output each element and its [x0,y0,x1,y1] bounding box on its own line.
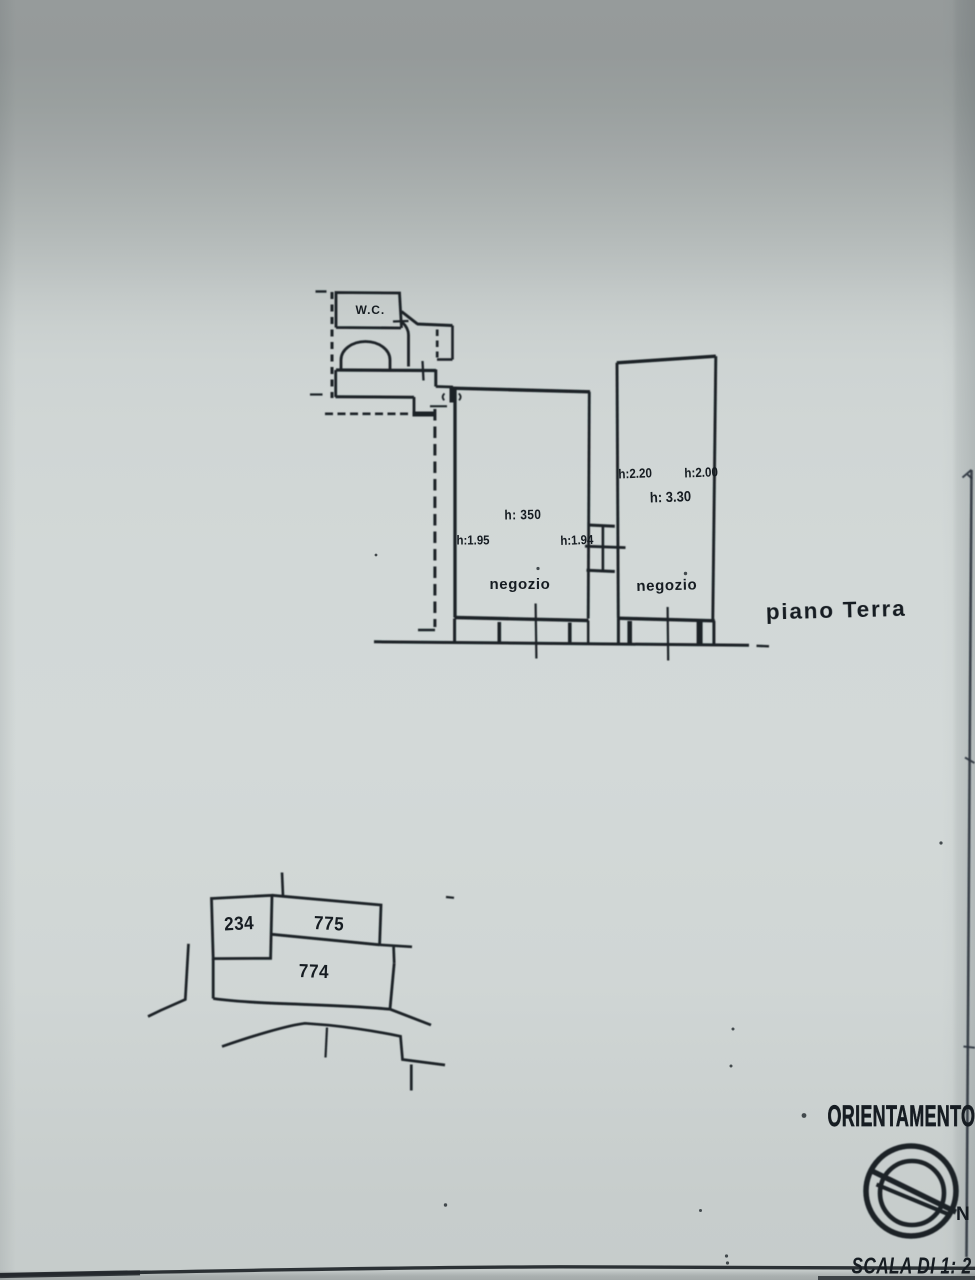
svg-text:h: 350: h: 350 [504,506,541,523]
svg-text:piano Terra: piano Terra [765,596,906,625]
svg-text:774: 774 [298,960,329,982]
svg-text:h:1.95: h:1.95 [457,533,490,548]
svg-text:h:2.20: h:2.20 [618,466,652,482]
svg-text:h:1.94: h:1.94 [560,532,594,548]
svg-text:W.C.: W.C. [356,303,386,317]
svg-text:N: N [956,1204,970,1225]
svg-text:SCALA DI 1: 2: SCALA DI 1: 2 [852,1254,972,1279]
svg-text:negozio: negozio [636,576,697,595]
svg-text:negozio: negozio [490,576,551,593]
svg-text:ORIENTAMENTO: ORIENTAMENTO [828,1101,975,1134]
svg-text:234: 234 [224,912,255,935]
svg-text:h: 3.30: h: 3.30 [650,488,692,505]
svg-text:775: 775 [313,912,345,935]
svg-text:h:2.00: h:2.00 [684,465,718,481]
